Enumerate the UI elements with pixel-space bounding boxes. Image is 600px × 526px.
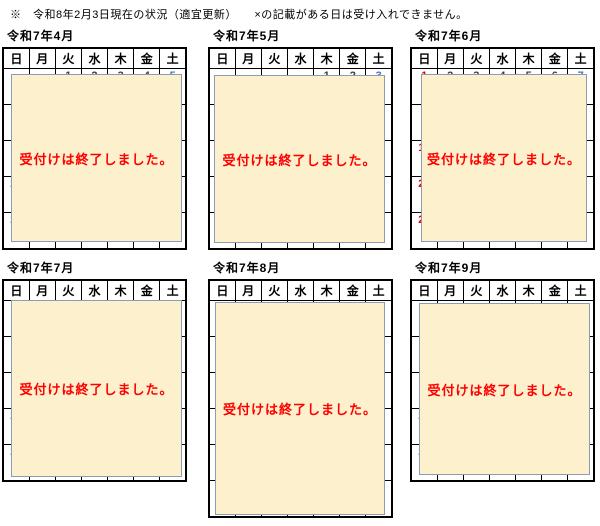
calendar-month-title: 令和7年6月 [415, 30, 595, 43]
weekday-header-cell: 日 [209, 280, 235, 301]
weekday-header-cell: 土 [160, 280, 186, 301]
weekday-header-cell: 月 [29, 280, 55, 301]
weekday-header-row: 日月火水木金土 [3, 280, 186, 301]
update-status-note: ※ 令和8年2月3日現在の状況（適宜更新） ×の記載がある日は受け入れできません… [10, 6, 468, 22]
month-calendar: 令和7年7月日月火水木金土12345×6×789101112×13×141516… [2, 262, 187, 482]
weekday-header-row: 日月火水木金土 [209, 280, 392, 301]
weekday-header-cell: 水 [489, 48, 515, 69]
weekday-header-cell: 日 [3, 280, 29, 301]
weekday-header-cell: 月 [437, 48, 463, 69]
reception-closed-overlay: 受付けは終了しました。 [214, 75, 385, 243]
month-calendar: 令和7年6月日月火水木金土1×234567×8×91011121314×15×1… [410, 30, 595, 250]
weekday-header-cell: 月 [29, 48, 55, 69]
weekday-header-cell: 水 [287, 48, 313, 69]
calendar-month-title: 令和7年9月 [415, 262, 595, 275]
weekday-header-cell: 火 [55, 48, 81, 69]
weekday-header-cell: 土 [366, 48, 392, 69]
weekday-header-cell: 水 [81, 280, 107, 301]
reception-closed-overlay: 受付けは終了しました。 [421, 74, 587, 242]
weekday-header-row: 日月火水木金土 [411, 280, 594, 301]
reception-closed-message: 受付けは終了しました。 [222, 150, 376, 169]
month-calendar: 令和7年4月日月火水木金土12345×6×789101112×13×141516… [2, 30, 187, 250]
weekday-header-cell: 水 [81, 48, 107, 69]
reception-closed-overlay: 受付けは終了しました。 [419, 303, 590, 475]
weekday-header-cell: 火 [463, 280, 489, 301]
weekday-header-cell: 金 [542, 48, 568, 69]
weekday-header-cell: 金 [340, 48, 366, 69]
weekday-header-cell: 土 [160, 48, 186, 69]
weekday-header-cell: 木 [516, 280, 542, 301]
weekday-header-cell: 火 [261, 48, 287, 69]
weekday-header-cell: 木 [314, 280, 340, 301]
calendar-month-title: 令和7年8月 [213, 262, 393, 275]
weekday-header-cell: 土 [568, 280, 594, 301]
weekday-header-cell: 金 [340, 280, 366, 301]
weekday-header-row: 日月火水木金土 [3, 48, 186, 69]
weekday-header-cell: 月 [235, 280, 261, 301]
reception-closed-overlay: 受付けは終了しました。 [215, 302, 385, 515]
weekday-header-cell: 火 [55, 280, 81, 301]
weekday-header-cell: 土 [568, 48, 594, 69]
weekday-header-cell: 金 [134, 280, 160, 301]
reception-closed-message: 受付けは終了しました。 [427, 380, 581, 399]
weekday-header-cell: 水 [489, 280, 515, 301]
month-calendar: 令和7年9月日月火水木金土123456×7×8910111213×14×15×1… [410, 262, 595, 482]
reception-closed-message: 受付けは終了しました。 [19, 149, 173, 168]
weekday-header-row: 日月火水木金土 [209, 48, 392, 69]
weekday-header-cell: 木 [314, 48, 340, 69]
weekday-header-cell: 月 [235, 48, 261, 69]
weekday-header-cell: 火 [463, 48, 489, 69]
weekday-header-cell: 金 [542, 280, 568, 301]
weekday-header-cell: 金 [134, 48, 160, 69]
reception-closed-message: 受付けは終了しました。 [427, 149, 581, 168]
calendar-month-title: 令和7年7月 [7, 262, 187, 275]
reception-closed-overlay: 受付けは終了しました。 [11, 74, 182, 242]
weekday-header-cell: 土 [366, 280, 392, 301]
weekday-header-cell: 日 [3, 48, 29, 69]
month-calendar: 令和7年8月日月火水木金土12×3×456789×10×11×121314151… [208, 262, 393, 518]
reception-closed-message: 受付けは終了しました。 [19, 379, 173, 398]
weekday-header-cell: 月 [437, 280, 463, 301]
weekday-header-cell: 日 [411, 280, 437, 301]
weekday-header-cell: 木 [516, 48, 542, 69]
weekday-header-cell: 日 [209, 48, 235, 69]
weekday-header-cell: 木 [108, 280, 134, 301]
weekday-header-cell: 日 [411, 48, 437, 69]
calendar-month-title: 令和7年5月 [213, 30, 393, 43]
month-calendar: 令和7年5月日月火水木金土123×4×5×6×78910×11×12131415… [208, 30, 393, 250]
reception-closed-overlay: 受付けは終了しました。 [11, 300, 182, 477]
reception-closed-message: 受付けは終了しました。 [223, 399, 377, 418]
weekday-header-cell: 木 [108, 48, 134, 69]
weekday-header-cell: 火 [261, 280, 287, 301]
weekday-header-cell: 水 [287, 280, 313, 301]
calendar-month-title: 令和7年4月 [7, 30, 187, 43]
weekday-header-row: 日月火水木金土 [411, 48, 594, 69]
page-canvas: { "page": { "note": "※ 令和8年2月3日現在の状況（適宜更… [0, 0, 600, 526]
